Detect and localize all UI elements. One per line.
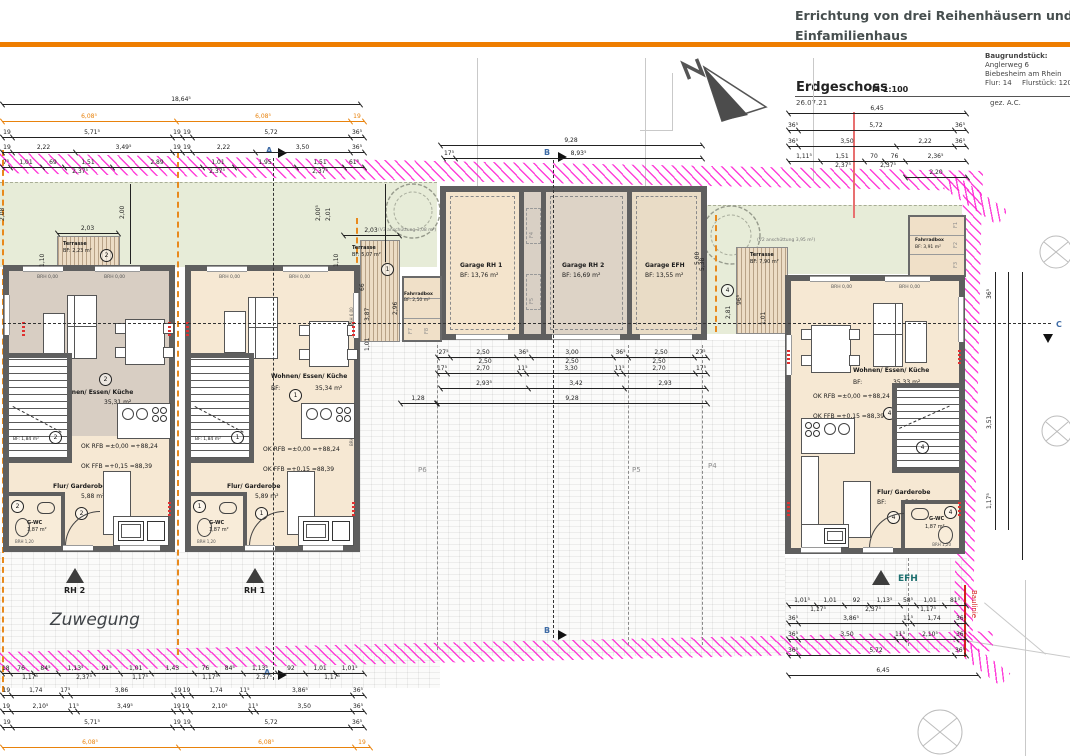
sink-icon	[122, 408, 134, 420]
terrace-efh-circle: 4	[721, 284, 734, 297]
sink-icon	[824, 423, 836, 435]
section-arrow-b	[558, 630, 567, 640]
dimension-label: 2,50	[654, 349, 667, 356]
brh-note: BRH 1,20	[197, 539, 216, 544]
brh-note: BRH 0,00	[899, 285, 920, 291]
chair	[849, 355, 860, 366]
section-label-c: C	[1056, 320, 1062, 329]
stair-circle: 4	[916, 441, 929, 454]
section-label-a: A	[266, 146, 272, 155]
dimension-label: 1,13⁵	[877, 597, 893, 604]
garage-door-opening	[552, 334, 620, 340]
unit-circle: 1	[289, 389, 302, 402]
header-rule	[795, 96, 1070, 97]
window-annotation	[168, 500, 171, 516]
stove-icon	[152, 407, 167, 422]
gwc-room: 1 G-WC 1,87 m²	[191, 492, 247, 546]
dimension-label: 5,72	[869, 122, 882, 129]
dimension-label: 3,49⁵	[117, 703, 133, 710]
dimension-sublabel: 2,37⁵	[256, 674, 272, 681]
dimension-vlabel: 1,10	[333, 254, 340, 267]
entry-door-arc	[869, 513, 904, 548]
dimension-sublabel: 2,37⁵	[865, 606, 881, 613]
dimension-label: 84⁵	[40, 665, 50, 672]
dimension-label: 3,50	[840, 631, 853, 638]
garage-rh1-area: BF: 13,76 m²	[460, 272, 498, 280]
dimension-label: 2,22	[918, 138, 931, 145]
dimension-label: 5,72	[264, 129, 277, 136]
room-bf: BF:	[877, 499, 886, 507]
dimension-label: 1,01	[923, 597, 936, 604]
terrace-rh2-area: BF: 2,23 m²	[63, 248, 92, 254]
garage-efh-area: BF: 13,55 m²	[645, 272, 683, 280]
parcel-divider	[715, 215, 717, 332]
dimension-label: 1,01	[19, 159, 32, 166]
entry-door-opening	[863, 547, 893, 553]
dimension-label: 2,70	[476, 365, 489, 372]
guide-line	[672, 73, 673, 131]
chair	[801, 355, 812, 366]
dimension-label: 2,10⁵	[212, 703, 228, 710]
dimension-label: 1,01	[313, 665, 326, 672]
section-arrow-b	[558, 152, 567, 162]
dimension-label: 2,93	[658, 380, 671, 387]
armchair	[43, 313, 65, 357]
brh-note: BRH 0,00	[37, 275, 58, 281]
kitchen-counter	[113, 516, 169, 546]
dimension-label: 1,51	[835, 153, 848, 160]
window-annotation	[186, 322, 189, 336]
entrance-label-rh1: RH 1	[244, 586, 265, 595]
level-rfb: OK RFB =±0,00 =+88,24	[263, 446, 340, 454]
window	[4, 295, 10, 335]
chair	[299, 325, 310, 336]
sink-icon	[118, 521, 144, 541]
dimension-label: 1,51	[313, 159, 326, 166]
dimension-label: 36⁵	[352, 129, 362, 136]
garden-right-lower	[703, 273, 738, 334]
dimension-label: 8,93⁵	[571, 150, 587, 157]
brh-note: BRH 0,00	[104, 275, 125, 281]
dimension-sublabel: 1,17⁵	[324, 674, 340, 681]
dimension-label: 3,50	[296, 144, 309, 151]
door-ref-f3: F3	[953, 262, 959, 268]
window	[120, 545, 160, 551]
wc-circle: 1	[193, 500, 206, 513]
dimension-label: 76	[202, 665, 210, 672]
room-area: 1,87 m²	[27, 527, 47, 533]
dimension-label: 61⁵	[349, 159, 359, 166]
dimension-label: 3,49⁵	[116, 144, 132, 151]
dimension-vlabel: 2,96	[392, 302, 399, 315]
dimension-label: 91⁵	[102, 665, 112, 672]
kitchen-island	[801, 418, 855, 454]
window	[283, 266, 328, 272]
window-annotation	[352, 322, 355, 336]
dimension-label: 11⁵	[239, 687, 249, 694]
guide-line	[1025, 580, 1026, 756]
survey-point-icon	[915, 708, 965, 756]
page-title-line2: Einfamilienhaus	[795, 28, 908, 43]
dimension-sublabel: 1,17⁵	[22, 674, 38, 681]
room-label-flur: Flur/ Garderobe	[877, 489, 930, 497]
anschuettung-right-note: (V2 anschüttung 3,95 m²)	[757, 238, 815, 243]
dimension-vlabel: 5,38	[699, 258, 706, 271]
window	[207, 266, 247, 272]
dimension-label: 6,45	[876, 667, 889, 674]
dimension-label: 9,28	[565, 395, 578, 402]
entry-door-opening	[63, 545, 93, 551]
dimension-label: 92	[853, 597, 861, 604]
parking-divider	[702, 345, 703, 645]
dimension-vlabel: 1,01	[760, 312, 767, 325]
terrace-rh1-area: BF: 5,07 m²	[352, 252, 381, 258]
door-ref-f4: F4	[529, 232, 535, 238]
terrace-rh1-circle: 1	[381, 263, 394, 276]
dimension-label: 1,43	[166, 665, 179, 672]
zuwegung-label: Zuwegung	[50, 610, 140, 630]
room-bf: BF:	[853, 379, 862, 387]
dimension-label: 2,10⁵	[33, 703, 49, 710]
orange-rule	[0, 42, 1070, 47]
dimension-label: 92	[287, 665, 295, 672]
stair-area: BF: 1,84 m²	[195, 437, 221, 443]
dimension-vlabel: 2,01	[325, 208, 332, 221]
washbasin-icon	[911, 508, 929, 520]
room-label-flur: Flur/ Garderobe	[53, 483, 106, 491]
survey-point-icon	[1040, 414, 1070, 448]
dimension-sublabel: 1,17⁵	[202, 674, 218, 681]
chair	[299, 349, 310, 360]
entrance-marker-efh	[872, 570, 890, 585]
dimension-vline	[1022, 272, 1023, 560]
kitchen-island	[301, 403, 355, 439]
dimension-label: 69	[49, 159, 57, 166]
garage-block: Garage RH 1 BF: 13,76 m² Garage RH 2 BF:…	[440, 186, 707, 340]
dimension-label: 1,11⁵	[796, 153, 812, 160]
parking-label-p4: P4	[708, 462, 717, 470]
dimension-label: 1,28	[411, 395, 424, 402]
dimension-label: 1,51	[81, 159, 94, 166]
dimension-label: 1,01⁵	[794, 597, 810, 604]
dimension-vlabel: 3,87	[364, 308, 371, 321]
dimension-label: 36⁵	[352, 719, 362, 726]
plot-address1: Anglerweg 6	[985, 61, 1029, 69]
dimension-vlabel: 36⁵	[986, 289, 993, 299]
gwc-room: 4 G-WC 1,87 m²	[901, 500, 959, 548]
brh-note: BRH 1,20	[932, 542, 951, 547]
dimension-label: 1,95	[258, 159, 271, 166]
bike-box-right-area: BF: 3,91 m²	[915, 245, 941, 251]
gwc-room: 2 G-WC 1,87 m²	[9, 492, 65, 546]
house-rh2: 2 Wohnen/ Essen/ Küche BF: 35,31 m² BRH …	[3, 265, 175, 552]
wc-circle: 4	[944, 506, 957, 519]
window	[810, 276, 850, 282]
window	[801, 547, 841, 553]
window	[885, 276, 930, 282]
dimension-label: 1,74	[209, 687, 222, 694]
sink-icon	[136, 408, 148, 420]
dimension-label: 5,72	[264, 719, 277, 726]
window	[958, 297, 964, 342]
dimension-label: 1,01⁵	[342, 665, 358, 672]
stair-area: BF: 1,84 m²	[13, 437, 39, 443]
bike-box-left-label: Fahrradbox	[404, 292, 433, 298]
parking-label-p6: P6	[418, 466, 427, 474]
dimension-label: 36⁵	[615, 349, 625, 356]
dimension-vlabel: 2,00⁵	[315, 205, 322, 221]
section-line-c	[3, 323, 1051, 324]
dimension-label: 1,74	[29, 687, 42, 694]
page-title-line1: Errichtung von drei Reihenhäusern und ei…	[795, 8, 1070, 23]
dining-table	[309, 321, 349, 367]
terrace-efh-area: BF: 7,90 m²	[750, 259, 779, 265]
room-area: 1,87 m²	[209, 527, 229, 533]
wc-circle: 2	[11, 500, 24, 513]
window	[303, 545, 343, 551]
dimension-vlabel: 1,17⁵	[986, 493, 993, 509]
survey-point-icon	[1038, 234, 1070, 270]
dimension-label: 76	[17, 665, 25, 672]
dimension-label: 11⁵	[614, 365, 624, 372]
garage-rh1-label: Garage RH 1	[460, 262, 502, 270]
chair	[115, 323, 126, 334]
dimension-label: 6,08⁵	[82, 739, 98, 746]
parking-label-p5: P5	[632, 466, 641, 474]
dimension-label: 1,13⁵	[252, 665, 268, 672]
dimension-label: 5,72	[869, 647, 882, 654]
dimension-sublabel: 1,17⁵	[810, 606, 826, 613]
dimension-vlabel: 1,10	[39, 254, 46, 267]
dimension-vlabel: 3,51	[986, 416, 993, 429]
dimension-label: 84⁵	[225, 665, 235, 672]
kitchen-counter	[801, 456, 819, 528]
dimension-sublabel: 1,17⁵	[132, 674, 148, 681]
parking-divider	[437, 345, 438, 650]
sink-icon	[306, 408, 318, 420]
stair-circle: 1	[231, 431, 244, 444]
dimension-sublabel: 2,37⁵	[835, 162, 851, 169]
dimension-label: 3,50	[840, 138, 853, 145]
dimension-label: 76	[891, 153, 899, 160]
dimension-label: 2,93⁵	[476, 380, 492, 387]
window-annotation	[352, 500, 355, 516]
dimension-label: 1,01	[823, 597, 836, 604]
dimension-label: 2,20	[929, 169, 942, 176]
dimension-sublabel: 2,50	[565, 358, 578, 365]
dimension-label: 2,03	[81, 225, 94, 232]
chair	[163, 347, 174, 358]
dimension-sublabel: 2,37⁵	[312, 168, 328, 175]
garage-door-opening	[456, 334, 508, 340]
dimension-label: 19	[353, 113, 361, 120]
anschuettung-left-note: (V3 anschüttung 3,08 m²)	[378, 228, 436, 233]
entry-door-arc	[249, 511, 284, 546]
survey-line	[984, 602, 1046, 654]
washbasin-icon	[37, 502, 55, 514]
dimension-sublabel: 2,37⁵	[72, 168, 88, 175]
garage-efh-label: Garage EFH	[645, 262, 685, 270]
dimension-label: 3,86⁵	[843, 615, 859, 622]
terrace-rh1-label: Terrasse	[352, 245, 376, 251]
terrace-rh2-circle: 2	[100, 249, 113, 262]
window-annotation	[787, 348, 790, 364]
dimension-vline	[1008, 272, 1009, 530]
dimension-label: 2,22	[37, 144, 50, 151]
parking-divider	[628, 345, 629, 645]
window-annotation	[958, 500, 961, 516]
red-reference-line	[853, 112, 855, 218]
sink-icon	[824, 528, 846, 544]
section-label-b: B	[544, 148, 550, 157]
dimension-label: 1,13⁵	[68, 665, 84, 672]
dimension-sublabel: 2,50	[478, 358, 491, 365]
dimension-label: 70	[870, 153, 878, 160]
staircase	[191, 353, 254, 463]
window	[95, 266, 140, 272]
dimension-vline	[385, 184, 386, 262]
staircase	[9, 353, 72, 463]
dimension-label: 5,71⁵	[84, 719, 100, 726]
dimension-vlabel: 1,01	[364, 338, 371, 351]
dimension-label: 2,03	[364, 227, 377, 234]
sink-icon	[838, 423, 850, 435]
armchair	[224, 311, 246, 353]
room-label-wc: G-WC	[209, 520, 224, 526]
stove-icon	[805, 422, 820, 437]
room-area: 1,87 m²	[925, 524, 945, 530]
dimension-label: 6,08⁵	[255, 113, 271, 120]
dimension-label: 2,89	[150, 159, 163, 166]
dining-table	[125, 319, 165, 365]
dimension-sublabel: 2,37⁵	[880, 162, 896, 169]
window-annotation	[958, 348, 961, 364]
dimension-vlabel: 2,08	[0, 208, 6, 221]
dimension-label: 3,42	[569, 380, 582, 387]
door-ref-f7: F7	[408, 328, 414, 334]
dimension-label: 11⁵	[69, 703, 79, 710]
unit-circle: 2	[99, 373, 112, 386]
plot-flur: Flur: 14	[985, 79, 1012, 87]
room-label-wc: G-WC	[27, 520, 42, 526]
level-rfb: OK RFB =±0,00 =+88,24	[813, 393, 890, 401]
level-rfb: OK RFB =±0,00 =+88,24	[81, 443, 158, 451]
dimension-label: 3,00	[565, 349, 578, 356]
room-area: 5,89 m²	[255, 493, 279, 501]
parcel-divider	[177, 152, 179, 655]
sink-icon	[320, 408, 332, 420]
dimension-label: 1,74	[927, 615, 940, 622]
sink-icon	[303, 521, 329, 541]
dimension-label: 5,71⁵	[84, 129, 100, 136]
plot-flurstueck: Flurstück: 120	[1022, 79, 1070, 87]
section-line-b	[553, 160, 554, 638]
dimension-label: 2,22	[217, 144, 230, 151]
staircase	[892, 383, 959, 473]
dimension-label: 36⁵	[518, 349, 528, 356]
sofa	[67, 295, 97, 359]
window-annotation	[22, 322, 25, 336]
chair	[115, 347, 126, 358]
section-line-a	[273, 158, 274, 680]
room-area: 35,34 m²	[315, 385, 342, 393]
garage-rh2-label: Garage RH 2	[562, 262, 604, 270]
dimension-label: 36⁵	[352, 144, 362, 151]
dimension-sublabel: 2,50	[652, 358, 665, 365]
brh-note: BRH 0,00	[219, 275, 240, 281]
dimension-vlabel: 96⁵	[736, 295, 743, 305]
entrance-marker-rh2	[66, 568, 84, 583]
dimension-sublabel: 2,37⁵	[209, 168, 225, 175]
door-ref-f5: F5	[529, 298, 535, 304]
room-label-wc: G-WC	[929, 516, 944, 522]
entrance-label-rh2: RH 2	[64, 586, 85, 595]
baulinie-label: Baulinie	[970, 590, 978, 618]
dimension-label: 3,30	[564, 365, 577, 372]
stair-circle: 2	[49, 431, 62, 444]
dimension-label: 1,01	[211, 159, 224, 166]
chair	[801, 329, 812, 340]
dimension-label: 2,70	[652, 365, 665, 372]
dimension-label: 3,86	[115, 687, 128, 694]
brh-note: BRH 0,00	[289, 275, 310, 281]
washbasin-icon	[219, 502, 237, 514]
dimension-sublabel: 2,37⁵	[76, 674, 92, 681]
brh-note: BRH 1,20	[15, 539, 34, 544]
window-annotation	[787, 500, 790, 516]
dimension-label: 19	[358, 739, 366, 746]
dimension-label: 2,50	[476, 349, 489, 356]
plot-address2: Biebesheim am Rhein	[985, 70, 1062, 78]
signed-by: gez. A.C.	[990, 99, 1021, 107]
door-ref-f8: F8	[424, 328, 430, 334]
terrace-efh-label: Terrasse	[750, 252, 774, 258]
dimension-vlabel: 2,00	[119, 206, 126, 219]
dimension-sublabel: 1,17⁵	[920, 606, 936, 613]
dimension-label: 6,08⁵	[81, 113, 97, 120]
entry-door-arc	[65, 511, 100, 546]
dimension-label: 6,08⁵	[258, 739, 274, 746]
kitchen-counter	[801, 524, 849, 548]
terrace-rh2-label: Terrasse	[63, 241, 87, 247]
dimension-label: 2,36⁵	[928, 153, 944, 160]
section-label-b: B	[544, 626, 550, 635]
room-label-living: Wohnen/ Essen/ Küche	[853, 367, 929, 375]
dimension-label: 18,64⁵	[171, 96, 191, 103]
stove-icon	[336, 407, 351, 422]
armchair	[905, 321, 927, 363]
dimension-label: 3,86⁵	[292, 687, 308, 694]
level-ffb: OK FFB =+0,15 =88,39	[81, 463, 152, 471]
garage-door-opening	[640, 334, 692, 340]
garage-rh2-area: BF: 16,69 m²	[562, 272, 600, 280]
bike-box-right-label: Fahrradbox	[915, 238, 944, 244]
dimension-vlabel: 66	[359, 283, 366, 291]
dimension-label: 81⁵	[950, 597, 960, 604]
dining-table	[811, 325, 851, 373]
drawing-date: 26.07.21	[796, 99, 827, 107]
kitchen-island	[117, 403, 171, 439]
north-arrow-icon	[678, 55, 773, 133]
dimension-label: 1,01	[129, 665, 142, 672]
chair	[347, 349, 358, 360]
house-efh: Wohnen/ Essen/ Küche BF: 35,33 m² BRH 0,…	[785, 275, 965, 554]
dimension-vlabel: 2,81	[725, 306, 732, 319]
dimension-label: 3,50	[298, 703, 311, 710]
dimension-label: 58⁵	[903, 597, 913, 604]
window-annotation	[168, 322, 171, 336]
section-arrow-c	[1043, 334, 1053, 343]
